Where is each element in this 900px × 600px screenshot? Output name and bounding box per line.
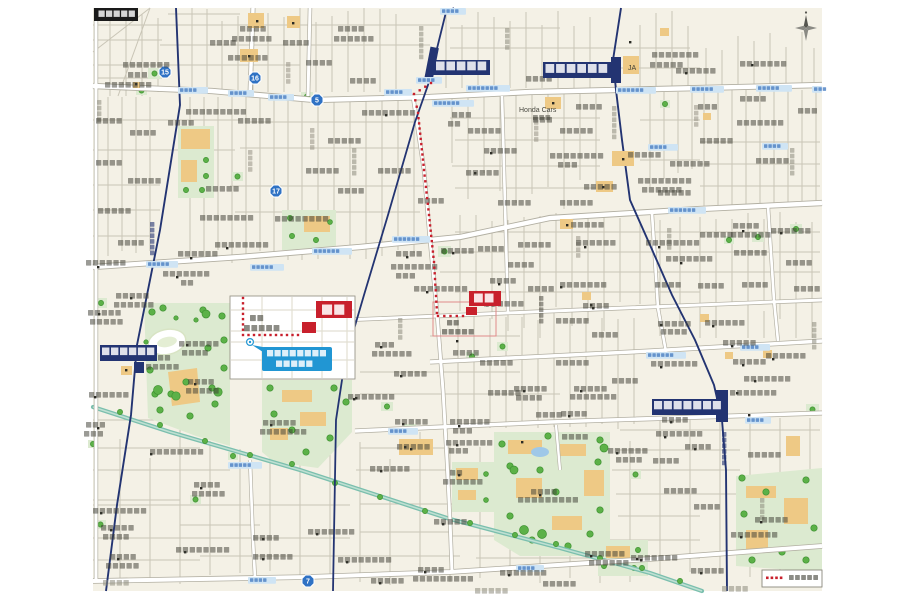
svg-text:Honda Cars: Honda Cars <box>519 107 557 114</box>
svg-text:17: 17 <box>272 189 280 196</box>
svg-text:7: 7 <box>306 579 310 586</box>
svg-text:5: 5 <box>315 98 319 105</box>
svg-text:15: 15 <box>161 70 169 77</box>
svg-text:JA: JA <box>628 65 637 72</box>
svg-text:16: 16 <box>251 76 259 83</box>
